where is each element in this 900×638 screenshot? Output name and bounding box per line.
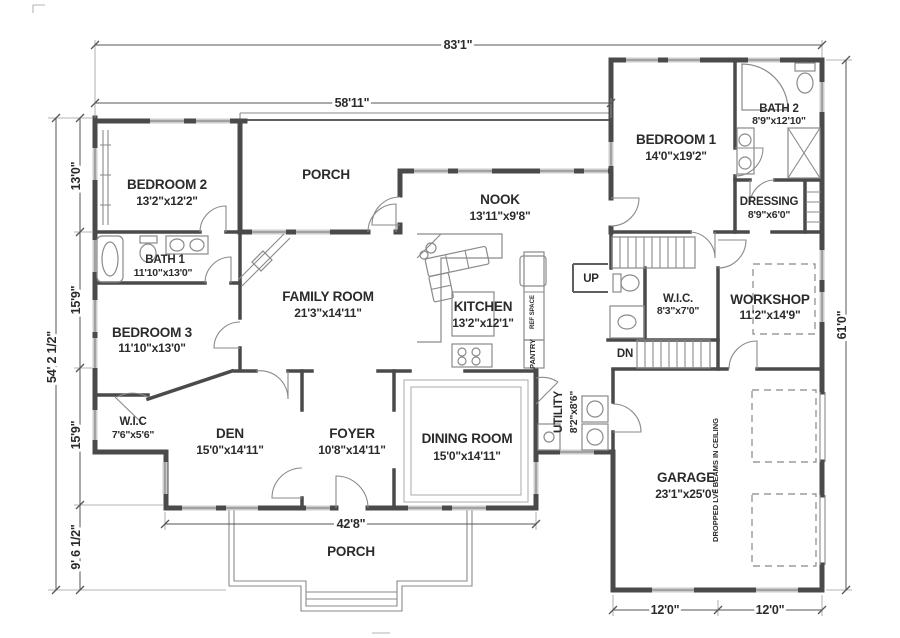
dim-top-left-section: 58'11" <box>335 96 370 110</box>
closet-shelves <box>806 192 821 222</box>
den-label: DEN <box>216 426 244 441</box>
dim-top-overall: 83'1" <box>444 38 473 52</box>
bath1-label: BATH 1 <box>145 254 185 266</box>
kitchen-size: 13'2"x12'1" <box>452 316 514 330</box>
dim-left-mid-lower: 15'9" <box>69 420 83 449</box>
family-room-label: FAMILY ROOM <box>282 289 374 304</box>
porch-top-label: PORCH <box>302 167 350 182</box>
workshop-label: WORKSHOP <box>730 292 810 307</box>
family-room-size: 21'3"x14'11" <box>294 306 361 320</box>
workshop-hall-door <box>718 240 746 268</box>
wic-lower-label: W.I.C <box>119 416 146 428</box>
floor-plan-canvas: 83'1" 58'11" 13'0" 15'9" 15'9" 9' 6 1/2"… <box>0 0 900 638</box>
family-fireplace <box>238 234 290 286</box>
bedroom2-closet <box>100 130 111 225</box>
bedroom2-door <box>200 206 226 232</box>
nook-size: 13'11"x9'8" <box>470 209 531 223</box>
bedroom2-size: 13'2"x12'2" <box>136 194 198 208</box>
bath1-door <box>205 257 231 283</box>
dining-room-size: 15'0"x14'11" <box>433 449 500 463</box>
stairs-down <box>637 340 710 368</box>
stairs-up-label: UP <box>583 273 599 285</box>
bath2-size: 8'9"x12'10" <box>752 115 806 127</box>
floor-plan-drawing: 83'1" 58'11" 13'0" 15'9" 15'9" 9' 6 1/2"… <box>0 0 900 638</box>
wic-upper-label: W.I.C. <box>663 293 693 305</box>
stairs-up <box>612 237 695 268</box>
dim-left-overall: 54' 2 1/2" <box>45 331 59 383</box>
pantry-label: PANTRY <box>528 339 537 369</box>
ref-space-label: REF SPACE <box>530 295 536 329</box>
workshop-garage-door <box>729 341 757 369</box>
garage-label: GARAGE <box>657 470 715 485</box>
dim-left-mid-upper: 15'9" <box>69 285 83 314</box>
bedroom2-label: BEDROOM 2 <box>127 177 207 192</box>
den-door <box>256 371 288 399</box>
dressing-label: DRESSING <box>740 196 799 208</box>
garage-note: DROPPED LVL BEAMS IN CEILING <box>711 418 720 542</box>
bedroom1-size: 14'0"x19'2" <box>645 149 707 163</box>
porch-bottom-label: PORCH <box>327 544 375 559</box>
wic-upper-door <box>690 232 715 258</box>
utility-garage-door <box>613 404 641 432</box>
kitchen-label: KITCHEN <box>454 299 513 314</box>
front-door <box>336 476 368 508</box>
dim-garage-right: 12'0" <box>756 603 785 617</box>
bath1-size: 11'10"x13'0" <box>134 267 193 279</box>
family-porch-door <box>368 204 396 232</box>
porch-top-edge <box>240 113 611 121</box>
dressing-size: 8'9"x6'0" <box>748 209 791 221</box>
bedroom3-label: BEDROOM 3 <box>112 325 193 340</box>
utility-size: 8'2"x8'6" <box>568 391 580 434</box>
foyer-size: 10'8"x14'11" <box>318 443 385 457</box>
hall-bath-fixtures <box>610 274 644 338</box>
bedroom1-door <box>611 198 639 226</box>
dining-room-label: DINING ROOM <box>422 431 513 446</box>
bedroom3-door <box>214 322 240 348</box>
foyer-den-door <box>272 468 302 498</box>
bedroom3-size: 11'10"x13'0" <box>118 341 185 355</box>
bath2-label: BATH 2 <box>759 103 798 115</box>
stairs-down-label: DN <box>617 348 633 360</box>
foyer-label: FOYER <box>329 426 375 441</box>
dim-bottom-main: 42'8" <box>337 517 366 531</box>
dim-right-overall: 61'0" <box>835 310 849 339</box>
dim-garage-left: 12'0" <box>651 603 680 617</box>
utility-label: UTILITY <box>553 390 565 433</box>
nook-furniture <box>425 246 495 302</box>
wic-upper-size: 8'3"x7'0" <box>657 305 700 317</box>
dim-left-bottom: 9' 6 1/2" <box>69 524 83 570</box>
wic-lower-size: 7'6"x5'6" <box>112 429 155 441</box>
dim-left-top: 13'0" <box>69 161 83 190</box>
garage-size: 23'1"x25'0" <box>655 487 717 501</box>
bedroom1-label: BEDROOM 1 <box>636 132 717 147</box>
den-size: 15'0"x14'11" <box>196 443 263 457</box>
workshop-size: 11'2"x14'9" <box>740 308 801 322</box>
nook-label: NOOK <box>480 192 520 207</box>
porch-steps <box>306 592 397 606</box>
